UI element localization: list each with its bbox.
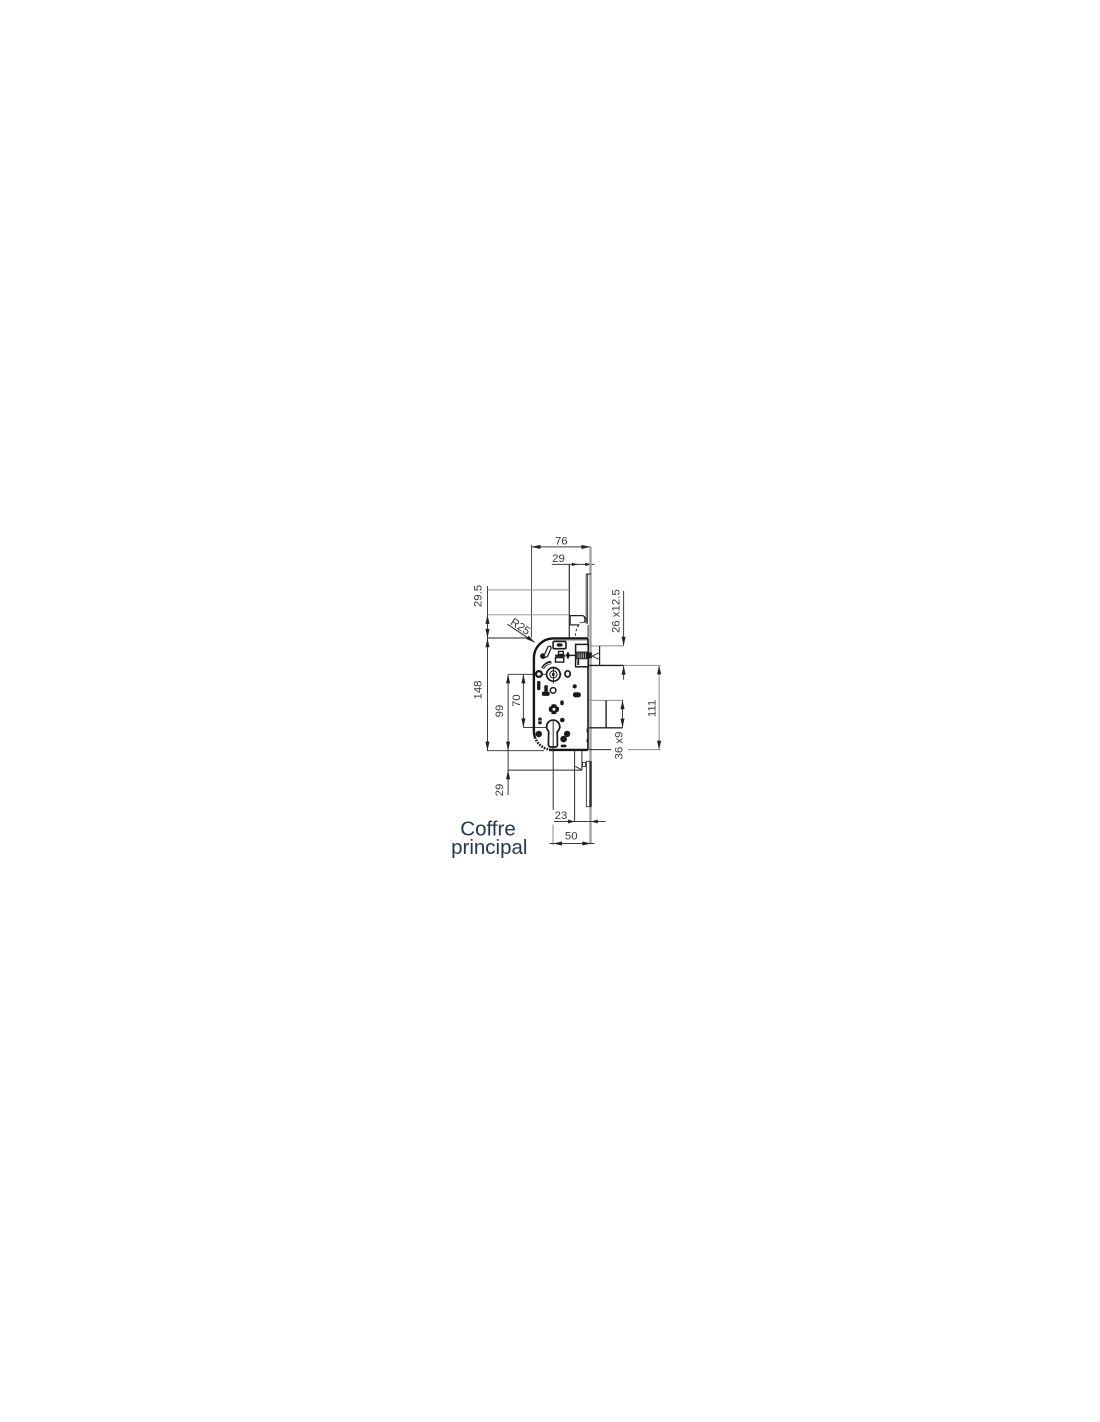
svg-text:76: 76 [555,535,568,547]
svg-text:23: 23 [555,810,568,822]
svg-text:R25: R25 [508,616,532,638]
svg-text:111: 111 [647,700,659,717]
svg-text:principal: principal [451,836,527,859]
svg-text:50: 50 [565,831,578,843]
svg-text:148: 148 [473,680,485,699]
svg-text:36 x9: 36 x9 [613,732,625,760]
svg-text:29: 29 [494,784,506,797]
svg-text:26 x12.5: 26 x12.5 [611,589,623,633]
svg-text:29.5: 29.5 [473,585,485,607]
svg-text:70: 70 [511,694,523,707]
svg-text:99: 99 [494,705,506,718]
svg-text:29: 29 [552,553,565,565]
